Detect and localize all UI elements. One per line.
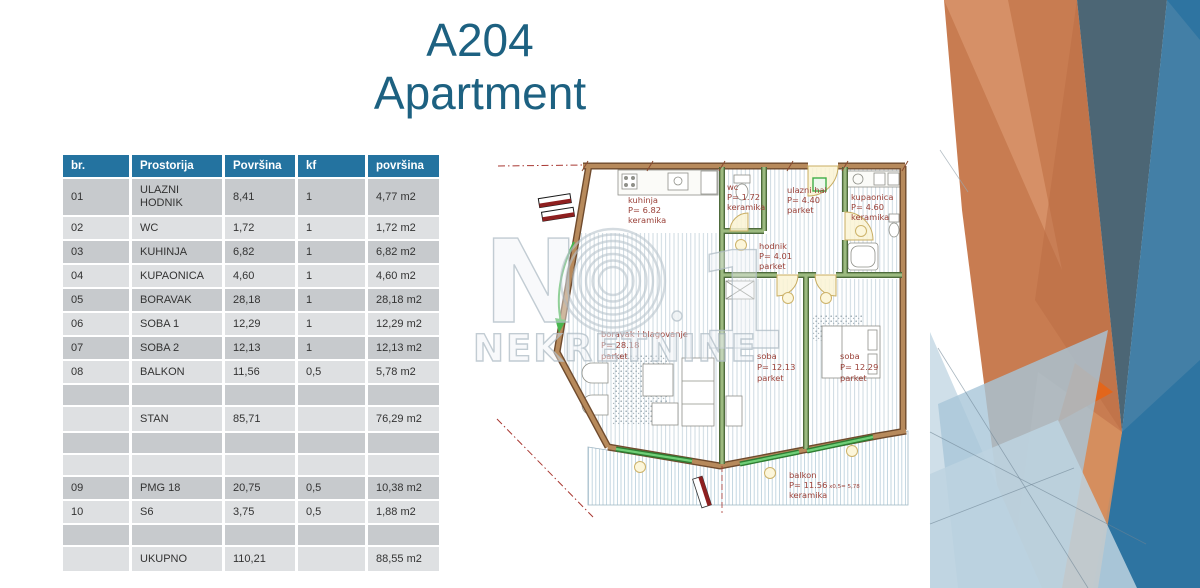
watermark-rings-icon: [561, 229, 665, 333]
table-cell: 1: [298, 289, 365, 311]
door-markers: [635, 226, 867, 479]
doors: [730, 166, 873, 296]
title-line-2: Apartment: [300, 67, 660, 120]
table-cell: SOBA 2: [132, 337, 222, 359]
table-cell: [298, 407, 365, 431]
table-cell: [368, 455, 439, 475]
apartment-table: br.ProstorijaPovršinakfpovršina 01ULAZNI…: [60, 153, 442, 573]
table-row: 09PMG 1820,750,510,38 m2: [63, 477, 439, 499]
room-label-ulazni-hal: ulazni hal P= 4.40 parket: [787, 185, 830, 215]
room-label-kuhinja: kuhinja P= 6.82 keramika: [628, 195, 666, 225]
balcony-floor: [588, 431, 908, 505]
table-cell: 1: [298, 337, 365, 359]
table-row: [63, 525, 439, 545]
column-header: br.: [63, 155, 129, 177]
table-cell: [132, 525, 222, 545]
table-cell: S6: [132, 501, 222, 523]
table-cell: [368, 385, 439, 405]
table-cell: 01: [63, 179, 129, 215]
table-cell: [63, 433, 129, 453]
table-cell: [225, 385, 295, 405]
table-cell: BORAVAK: [132, 289, 222, 311]
slide: A204 Apartment br.ProstorijaPovršinakfpo…: [0, 0, 1200, 588]
table-cell: 3,75: [225, 501, 295, 523]
table-cell: [63, 385, 129, 405]
table-cell: 07: [63, 337, 129, 359]
apartment-table-body: 01ULAZNI HODNIK8,4114,77 m202WC1,7211,72…: [63, 179, 439, 571]
room-label-soba-2: soba P= 12.29 parket: [840, 351, 881, 383]
table-cell: 0,5: [298, 361, 365, 383]
room-label-hodnik: hodnik P= 4.01 parket: [759, 241, 795, 271]
table-cell: 05: [63, 289, 129, 311]
entry-door: [808, 166, 838, 196]
table-cell: 6,82 m2: [368, 241, 439, 263]
table-cell: 8,41: [225, 179, 295, 215]
table-cell: 1: [298, 313, 365, 335]
entry-arrow-icon: [555, 242, 574, 333]
walls: [557, 165, 906, 466]
table-cell: 1: [298, 179, 365, 215]
decoration-shapes: [930, 0, 1200, 588]
table-cell: 1,72: [225, 217, 295, 239]
table-row: [63, 385, 439, 405]
table-cell: 10,38 m2: [368, 477, 439, 499]
table-cell: [368, 525, 439, 545]
table-header-row: br.ProstorijaPovršinakfpovršina: [63, 155, 439, 177]
table-cell: 1,72 m2: [368, 217, 439, 239]
table-row: UKUPNO110,2188,55 m2: [63, 547, 439, 571]
table-cell: STAN: [132, 407, 222, 431]
column-header: kf: [298, 155, 365, 177]
table-cell: 06: [63, 313, 129, 335]
room-label-soba-1: soba P= 12.13 parket: [757, 351, 798, 383]
table-row: 06SOBA 112,29112,29 m2: [63, 313, 439, 335]
dimension-marks: [497, 161, 908, 517]
table-cell: [225, 455, 295, 475]
room-floors: [557, 168, 908, 505]
table-cell: 12,29: [225, 313, 295, 335]
table-cell: [225, 433, 295, 453]
table-cell: 1: [298, 265, 365, 287]
furniture: [582, 170, 901, 426]
table-cell: 09: [63, 477, 129, 499]
stamp-bars: [538, 193, 574, 221]
table-row: 04KUPAONICA4,6014,60 m2: [63, 265, 439, 287]
table-cell: 08: [63, 361, 129, 383]
table-cell: BALKON: [132, 361, 222, 383]
table-cell: 28,18 m2: [368, 289, 439, 311]
table-row: 01ULAZNI HODNIK8,4114,77 m2: [63, 179, 439, 215]
table-cell: 1: [298, 217, 365, 239]
table-cell: 1: [298, 241, 365, 263]
table-cell: 20,75: [225, 477, 295, 499]
room-label-kupaonica: kupaonica P= 4.60 keramika: [851, 192, 896, 222]
table-cell: [298, 455, 365, 475]
table-cell: 02: [63, 217, 129, 239]
table-cell: 12,13: [225, 337, 295, 359]
table-cell: 1,88 m2: [368, 501, 439, 523]
column-header: površina: [368, 155, 439, 177]
table-cell: ULAZNI HODNIK: [132, 179, 222, 215]
table-cell: 11,56: [225, 361, 295, 383]
table-cell: 6,82: [225, 241, 295, 263]
table-row: 07SOBA 212,13112,13 m2: [63, 337, 439, 359]
table-cell: [63, 455, 129, 475]
table-cell: [132, 385, 222, 405]
table-cell: [298, 547, 365, 571]
title-line-1: A204: [300, 14, 660, 67]
table-cell: 0,5: [298, 477, 365, 499]
floor-plan: kuhinja P= 6.82 keramika wc P= 1.72 kera…: [440, 140, 960, 588]
table-cell: 12,13 m2: [368, 337, 439, 359]
table-cell: 88,55 m2: [368, 547, 439, 571]
table-cell: [63, 547, 129, 571]
table-cell: KUHINJA: [132, 241, 222, 263]
room-label-wc: wc P= 1.72 keramika: [727, 182, 765, 212]
table-row: 10S63,750,51,88 m2: [63, 501, 439, 523]
table-row: [63, 433, 439, 453]
table-cell: 4,77 m2: [368, 179, 439, 215]
table-row: [63, 455, 439, 475]
table-cell: 0,5: [298, 501, 365, 523]
table-cell: [298, 385, 365, 405]
table-row: 05BORAVAK28,18128,18 m2: [63, 289, 439, 311]
table-cell: 5,78 m2: [368, 361, 439, 383]
watermark-dot-icon: [672, 311, 682, 321]
table-cell: 28,18: [225, 289, 295, 311]
table-row: 02WC1,7211,72 m2: [63, 217, 439, 239]
table-cell: KUPAONICA: [132, 265, 222, 287]
table-cell: UKUPNO: [132, 547, 222, 571]
balcony-windows: [616, 437, 873, 464]
table-cell: [132, 455, 222, 475]
table-row: 03KUHINJA6,8216,82 m2: [63, 241, 439, 263]
table-cell: 85,71: [225, 407, 295, 431]
room-label-balkon: balkon P= 11.56 x0,5= 5,78 keramika: [789, 470, 862, 500]
table-cell: 4,60: [225, 265, 295, 287]
table-cell: [63, 525, 129, 545]
room-labels: kuhinja P= 6.82 keramika wc P= 1.72 kera…: [601, 182, 896, 500]
table-cell: 4,60 m2: [368, 265, 439, 287]
table-cell: WC: [132, 217, 222, 239]
table-cell: 03: [63, 241, 129, 263]
table-cell: [132, 433, 222, 453]
table-cell: 10: [63, 501, 129, 523]
column-header: Površina: [225, 155, 295, 177]
entrance-marker: [813, 178, 826, 191]
scale-marker: [693, 476, 712, 508]
table-cell: [63, 407, 129, 431]
table-cell: [298, 525, 365, 545]
table-row: STAN85,7176,29 m2: [63, 407, 439, 431]
table-cell: [298, 433, 365, 453]
table-row: 08BALKON11,560,55,78 m2: [63, 361, 439, 383]
watermark-digit: 1: [694, 223, 788, 380]
room-label-boravak: boravak i blagovanje P= 28.18 parket: [601, 329, 691, 361]
table-cell: 04: [63, 265, 129, 287]
table-cell: PMG 18: [132, 477, 222, 499]
watermark-letter-n: N: [483, 216, 579, 350]
table-cell: 12,29 m2: [368, 313, 439, 335]
table-cell: 76,29 m2: [368, 407, 439, 431]
watermark-label: NEKRETNINE: [473, 327, 758, 370]
table-cell: 110,21: [225, 547, 295, 571]
page-title: A204 Apartment: [300, 14, 660, 120]
table-cell: [225, 525, 295, 545]
table-cell: SOBA 1: [132, 313, 222, 335]
table-cell: [368, 433, 439, 453]
column-header: Prostorija: [132, 155, 222, 177]
watermark: N 1 NEKRETNINE: [473, 216, 788, 380]
